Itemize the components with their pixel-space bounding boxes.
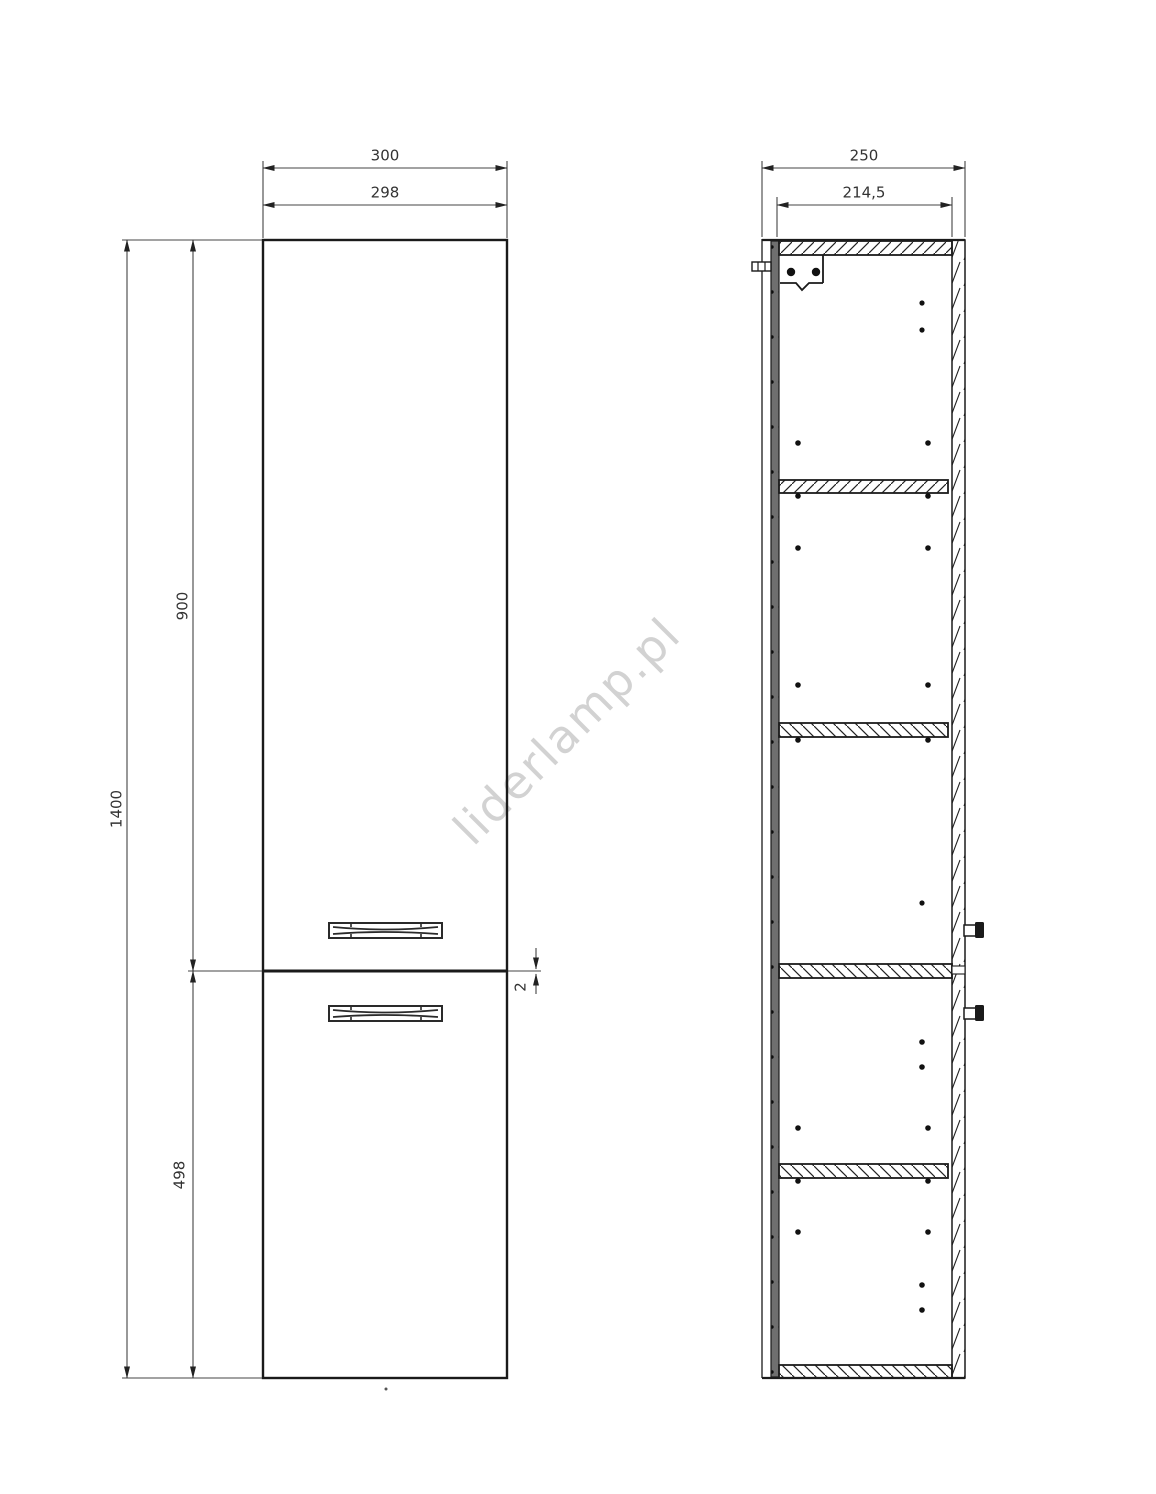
side-shelf-4	[779, 1164, 948, 1178]
dim-label-width-outer: 300	[369, 149, 402, 164]
side-top-panel	[779, 241, 952, 255]
wall-mount-knob-upper	[964, 922, 984, 938]
dim-label-width-door: 298	[369, 186, 402, 201]
dim-label-height-total: 1400	[110, 788, 125, 830]
lower-door-handle	[329, 1006, 442, 1021]
front-view	[263, 240, 507, 1391]
front-cabinet-outline	[263, 240, 507, 1378]
wall-mount-knob-lower	[964, 1005, 984, 1021]
dim-label-door-bottom-height: 498	[173, 1159, 188, 1192]
side-back-panel	[952, 240, 965, 1378]
side-shelf-3-fixed	[779, 964, 952, 978]
side-door-panel	[771, 241, 779, 1377]
stray-mark	[385, 1388, 388, 1391]
dim-label-door-top-height: 900	[176, 590, 191, 623]
dim-label-door-gap: 2	[514, 980, 529, 994]
cabinet-technical-drawing	[0, 0, 1156, 1494]
dim-label-depth-inner: 214,5	[841, 186, 888, 201]
upper-door-handle	[329, 923, 442, 938]
technical-drawing-canvas: liderlamp.pl	[0, 0, 1156, 1494]
side-shelf-1	[779, 480, 948, 493]
hanger-bracket	[780, 255, 823, 290]
side-bottom-panel	[779, 1365, 952, 1378]
side-view	[752, 239, 984, 1378]
door-top-fitting	[752, 262, 771, 271]
side-shelf-2	[779, 723, 948, 737]
dim-label-depth-outer: 250	[848, 149, 881, 164]
side-shelf-3-tenon	[952, 966, 965, 974]
shelf-pin-holes	[795, 300, 931, 1312]
